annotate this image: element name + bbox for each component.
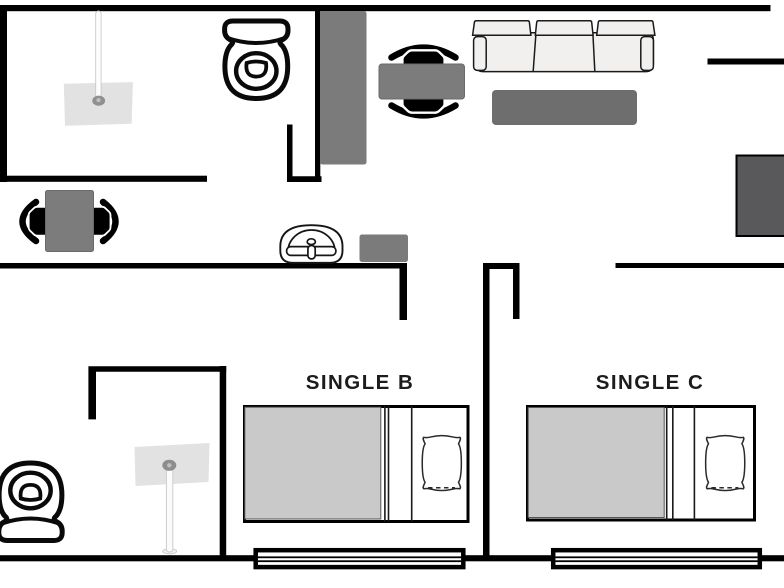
svg-text:SINGLE C: SINGLE C [596,371,704,394]
svg-text:SINGLE B: SINGLE B [306,371,414,394]
